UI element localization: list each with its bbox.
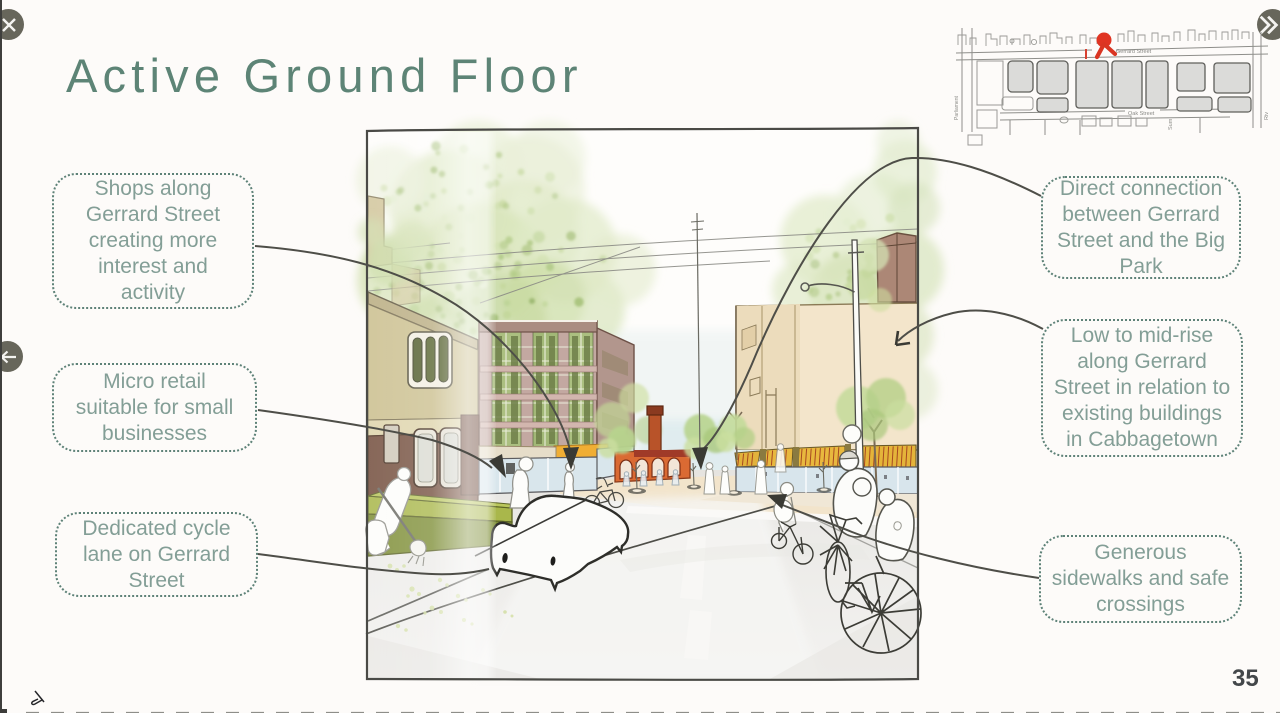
svg-text:Riv: Riv <box>1264 112 1270 120</box>
svg-text:Gerrard Street: Gerrard Street <box>1116 49 1152 55</box>
svg-text:Oak Street: Oak Street <box>1128 111 1155 117</box>
svg-text:Parliament: Parliament <box>954 95 960 120</box>
svg-text:Sum: Sum <box>1168 118 1174 130</box>
